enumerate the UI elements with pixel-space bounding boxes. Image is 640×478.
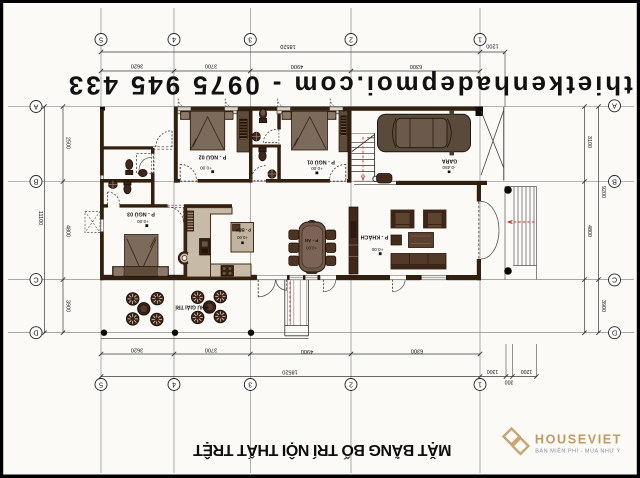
svg-text:18520: 18520 xyxy=(280,43,296,49)
svg-text:9200: 9200 xyxy=(600,186,606,198)
svg-text:P - NGỦ 01: P - NGỦ 01 xyxy=(307,159,335,166)
svg-text:+0.00: +0.00 xyxy=(371,247,383,252)
svg-text:A: A xyxy=(33,102,38,111)
svg-text:4: 4 xyxy=(172,380,176,389)
svg-text:5: 5 xyxy=(99,35,103,44)
svg-text:6300: 6300 xyxy=(410,63,422,69)
svg-text:+0.00: +0.00 xyxy=(306,246,317,251)
svg-text:B: B xyxy=(612,177,617,186)
svg-text:3700: 3700 xyxy=(205,63,217,69)
svg-text:+0.00: +0.00 xyxy=(137,219,149,224)
svg-text:3620: 3620 xyxy=(131,347,143,353)
svg-text:2: 2 xyxy=(349,35,353,44)
svg-text:3900: 3900 xyxy=(65,300,71,312)
svg-text:4900: 4900 xyxy=(291,63,303,69)
svg-text:3700: 3700 xyxy=(205,347,217,353)
svg-text:HOUSEVIET: HOUSEVIET xyxy=(535,433,622,447)
svg-text:+0.00: +0.00 xyxy=(200,166,212,171)
svg-text:B: B xyxy=(33,177,38,186)
svg-text:MẶT BẰNG BỐ TRÍ NỘI THẤT TRỆT: MẶT BẰNG BỐ TRÍ NỘI THẤT TRỆT xyxy=(193,441,452,461)
svg-text:3620: 3620 xyxy=(131,63,143,69)
svg-text:4900: 4900 xyxy=(301,348,313,354)
svg-text:P - NGỦ 03: P - NGỦ 03 xyxy=(127,211,155,218)
svg-text:P - NGỦ 02: P - NGỦ 02 xyxy=(199,154,227,161)
svg-text:4: 4 xyxy=(172,35,176,44)
svg-text:4800: 4800 xyxy=(586,225,592,237)
svg-text:P - KHÁCH: P - KHÁCH xyxy=(361,234,389,241)
svg-text:BÁN MIỄN PHÍ - MUA NHƯ Ý: BÁN MIỄN PHÍ - MUA NHƯ Ý xyxy=(535,448,620,455)
svg-text:300: 300 xyxy=(505,379,514,385)
svg-text:6300: 6300 xyxy=(411,348,423,354)
svg-text:18520: 18520 xyxy=(282,369,298,375)
svg-text:GARA: GARA xyxy=(442,158,458,164)
svg-text:2: 2 xyxy=(349,380,353,389)
svg-text:1200: 1200 xyxy=(521,368,533,374)
svg-text:3100: 3100 xyxy=(586,136,592,148)
svg-text:1200: 1200 xyxy=(486,43,498,49)
svg-text:1300: 1300 xyxy=(487,368,499,374)
svg-text:C: C xyxy=(33,275,38,284)
svg-text:4800: 4800 xyxy=(65,225,71,237)
svg-text:5: 5 xyxy=(99,380,103,389)
svg-text:1: 1 xyxy=(478,380,482,389)
svg-text:3: 3 xyxy=(248,35,252,44)
svg-text:D: D xyxy=(612,329,617,338)
svg-text:3900: 3900 xyxy=(600,300,606,312)
svg-text:D: D xyxy=(33,329,38,338)
svg-text:1: 1 xyxy=(478,35,482,44)
svg-text:11100: 11100 xyxy=(37,211,43,225)
svg-text:+0.00: +0.00 xyxy=(311,166,323,171)
svg-text:thietkenhadepmoi.com - 0975 94: thietkenhadepmoi.com - 0975 945 433 xyxy=(66,71,633,101)
svg-text:C: C xyxy=(612,276,617,285)
svg-text:P - BẾP: P - BẾP xyxy=(236,228,251,233)
svg-text:-0.450: -0.450 xyxy=(442,165,455,170)
svg-text:+0.00: +0.00 xyxy=(237,235,248,240)
svg-text:A: A xyxy=(612,102,617,111)
svg-text:3: 3 xyxy=(248,380,252,389)
svg-text:KHU GIẢI TRÍ: KHU GIẢI TRÍ xyxy=(175,304,209,312)
svg-text:P - ĂN: P - ĂN xyxy=(304,238,318,244)
svg-text:2500: 2500 xyxy=(65,137,71,149)
